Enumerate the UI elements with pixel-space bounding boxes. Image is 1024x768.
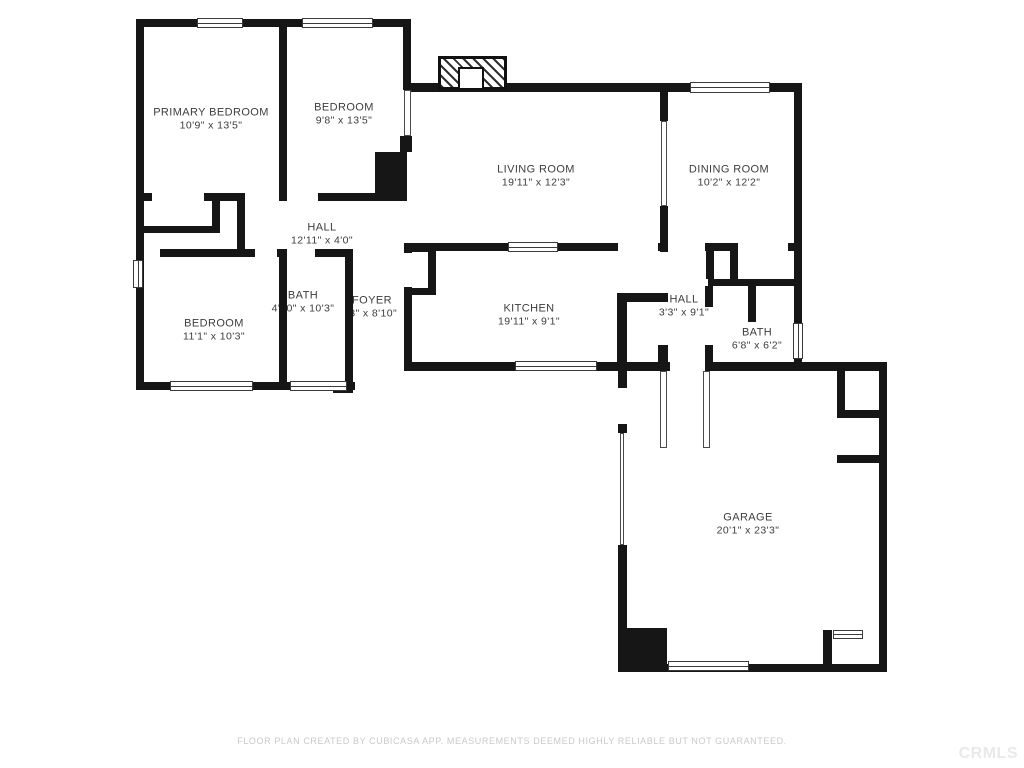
wall	[136, 193, 152, 201]
room-name: BATH	[732, 327, 782, 339]
wall	[617, 293, 627, 370]
wall	[823, 630, 832, 668]
wall	[204, 193, 245, 201]
wall	[708, 279, 796, 286]
fireplace-hearth-icon	[458, 67, 484, 90]
wall	[279, 257, 287, 382]
wall	[411, 243, 508, 251]
window	[793, 323, 803, 359]
thin-wall	[620, 433, 624, 545]
room-dims: 10'2" x 12'2"	[689, 177, 769, 189]
window	[133, 260, 143, 288]
wall	[412, 288, 430, 295]
wall	[136, 19, 144, 258]
wall	[618, 424, 627, 433]
wall	[279, 193, 287, 201]
wall	[705, 243, 738, 251]
wall	[403, 19, 411, 90]
room-label-garage: GARAGE 20'1" x 23'3"	[717, 512, 780, 537]
room-dims: '3" x 8'10"	[347, 308, 397, 320]
room-name: LIVING ROOM	[497, 164, 575, 176]
wall	[277, 249, 287, 257]
wall	[658, 345, 668, 362]
room-label-hall-center: HALL 12'11" x 4'0"	[291, 222, 353, 247]
room-dims: 12'11" x 4'0"	[291, 235, 353, 247]
room-label-dining-room: DINING ROOM 10'2" x 12'2"	[689, 164, 769, 189]
window	[668, 661, 749, 671]
wall	[558, 243, 618, 251]
wall-mass	[375, 152, 407, 201]
room-label-foyer: FOYER '3" x 8'10"	[347, 295, 397, 320]
room-name: HALL	[291, 222, 353, 234]
room-name: GARAGE	[717, 512, 780, 524]
wall	[618, 370, 627, 388]
room-label-kitchen: KITCHEN 19'11" x 9'1"	[498, 303, 560, 328]
wall	[730, 251, 738, 281]
room-name: KITCHEN	[498, 303, 560, 315]
wall	[318, 193, 375, 201]
thin-wall	[660, 371, 667, 448]
room-dims: 19'11" x 12'3"	[497, 177, 575, 189]
floor-plan: PRIMARY BEDROOM 10'9" x 13'5" BEDROOM 9'…	[0, 0, 1024, 768]
wall	[245, 249, 255, 257]
wall	[837, 410, 887, 418]
room-dims: 20'1" x 23'3"	[717, 525, 780, 537]
room-dims: 6'8" x 6'2"	[732, 340, 782, 352]
wall	[212, 201, 220, 228]
wall	[279, 27, 287, 193]
wall	[237, 201, 245, 257]
wall	[658, 243, 668, 251]
room-label-bedroom-lower: BEDROOM 11'1" x 10'3"	[183, 318, 245, 343]
wall	[837, 455, 887, 463]
window	[197, 18, 243, 28]
room-dims: 19'11" x 9'1"	[498, 316, 560, 328]
wall	[660, 83, 668, 121]
wall	[788, 243, 802, 251]
window-passthrough	[508, 242, 558, 252]
wall	[136, 226, 220, 233]
wall	[345, 249, 353, 393]
thin-wall	[404, 90, 411, 136]
room-name: FOYER	[347, 295, 397, 307]
room-name: BEDROOM	[314, 102, 374, 114]
room-name: BEDROOM	[183, 318, 245, 330]
wall	[404, 287, 412, 370]
room-label-primary-bedroom: PRIMARY BEDROOM 10'9" x 13'5"	[153, 107, 269, 132]
room-name: DINING ROOM	[689, 164, 769, 176]
window	[290, 381, 347, 391]
wall	[705, 362, 887, 371]
wall	[160, 249, 237, 257]
crmls-watermark: CRMLS	[959, 745, 1018, 763]
disclaimer-text: FLOOR PLAN CREATED BY CUBICASA APP. MEAS…	[0, 736, 1024, 746]
wall	[748, 286, 756, 322]
wall	[706, 251, 714, 279]
window	[833, 630, 863, 639]
wall-mass	[620, 628, 667, 668]
thin-wall	[703, 371, 710, 448]
room-name: PRIMARY BEDROOM	[153, 107, 269, 119]
window	[690, 82, 770, 93]
wall	[794, 83, 802, 323]
window	[515, 361, 597, 371]
room-label-living-room: LIVING ROOM 19'11" x 12'3"	[497, 164, 575, 189]
window	[302, 18, 373, 28]
room-dims: 10'9" x 13'5"	[153, 120, 269, 132]
wall	[705, 286, 713, 307]
room-label-bath-right: BATH 6'8" x 6'2"	[732, 327, 782, 352]
window	[170, 381, 253, 391]
thin-wall	[661, 121, 667, 206]
room-dims: 9'8" x 13'5"	[314, 115, 374, 127]
room-dims: 11'1" x 10'3"	[183, 331, 245, 343]
wall	[400, 136, 412, 152]
room-dims: 3'3" x 9'1"	[659, 307, 709, 319]
room-label-bedroom-top: BEDROOM 9'8" x 13'5"	[314, 102, 374, 127]
